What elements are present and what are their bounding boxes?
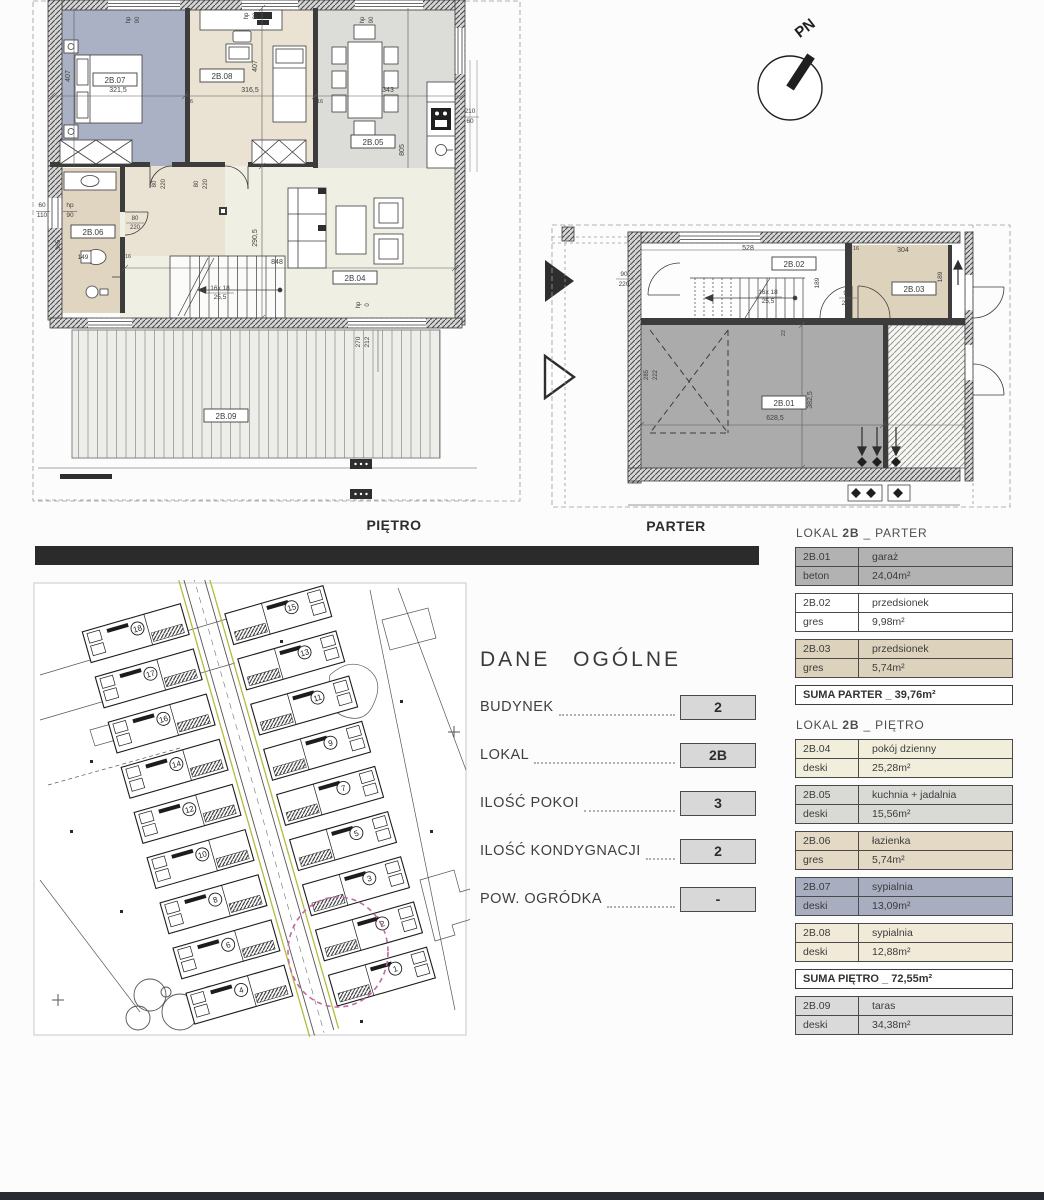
dimension-label: 90 <box>253 12 259 19</box>
dimension-label: 321,5 <box>109 87 127 94</box>
dane-value-box: 2 <box>680 695 756 720</box>
dimension-label: 80 <box>152 180 158 187</box>
sofa-icon <box>288 188 326 268</box>
dimension-label: 25,5 <box>214 294 227 301</box>
room-table: 2B.08sypialniadeski12,88m² <box>795 923 1013 962</box>
wardrobe-icon <box>252 140 306 164</box>
dimension-label: hp <box>244 12 250 19</box>
room-name-cell: taras <box>859 997 895 1015</box>
window-icon <box>108 1 423 10</box>
dimension-label: 90 <box>135 16 141 23</box>
dotted-leader <box>559 699 675 716</box>
room-id-cell: 2B.06 <box>796 832 859 850</box>
room-name-cell: przedsionek <box>859 640 929 658</box>
room-id-cell: 2B.05 <box>796 786 859 804</box>
room-label: 2B.05 <box>363 138 384 147</box>
dimension-label: 628,5 <box>766 415 784 422</box>
room-area-cell: 15,56m² <box>859 805 911 823</box>
dane-value-box: 3 <box>680 791 756 816</box>
room-name-cell: przedsionek <box>859 594 929 612</box>
dimension-label: 805 <box>399 144 406 156</box>
dimension-label: 110 <box>37 212 48 219</box>
bed-icon <box>273 46 306 122</box>
room-id-cell: 2B.03 <box>796 640 859 658</box>
legend-header-text: _ PIĘTRO <box>859 718 924 732</box>
dimension-label: 382,5 <box>807 391 814 409</box>
north-label: PN <box>792 15 819 41</box>
legend-header-text: 2B <box>842 718 859 732</box>
dimension-label: hp <box>66 202 74 209</box>
dane-value-box: 2 <box>680 839 756 864</box>
room-id-cell: 2B.01 <box>796 548 859 566</box>
dane-row: ILOŚĆ POKOI3 <box>480 790 756 816</box>
dimension-label: 16 <box>187 99 193 105</box>
dimension-label: 220 <box>130 225 141 231</box>
dimension-label: 270 <box>355 336 362 347</box>
room-area-cell: 25,28m² <box>859 759 911 777</box>
room-area-cell: 5,74m² <box>859 851 905 869</box>
dane-row: LOKAL2B <box>480 742 756 768</box>
dimension-label: 16 <box>853 246 859 252</box>
room-label: 2B.07 <box>105 76 126 85</box>
bottom-strip <box>0 1192 1044 1200</box>
room-area-cell: 12,88m² <box>859 943 911 961</box>
dimension-label: 212 <box>364 336 371 347</box>
room-id-cell: 2B.02 <box>796 594 859 612</box>
dimension-label: hp <box>360 16 366 23</box>
suma-row: SUMA PIĘTRO _ 72,55m² <box>795 969 1013 989</box>
room-table: 2B.01garażbeton24,04m² <box>795 547 1013 586</box>
room-material-cell: deski <box>796 897 859 915</box>
room-table: 2B.05kuchnia + jadalniadeski15,56m² <box>795 785 1013 824</box>
dimension-label: 220 <box>203 178 209 189</box>
dimension-label: 365 <box>55 239 62 250</box>
legend-header-text: 2B <box>842 526 859 540</box>
room-table: 2B.07sypialniadeski13,09m² <box>795 877 1013 916</box>
room-id-cell: 2B.08 <box>796 924 859 942</box>
dimension-label: 80 <box>194 180 200 187</box>
room-material-cell: gres <box>796 851 859 869</box>
dimension-label: 189 <box>937 271 944 282</box>
room-label: 2B.08 <box>212 72 233 81</box>
window-icon <box>680 233 760 243</box>
room-label: 2B.09 <box>216 412 237 421</box>
room-table: 2B.02przedsionekgres9,98m² <box>795 593 1013 632</box>
room-id-cell: 2B.04 <box>796 740 859 758</box>
room-label: 2B.06 <box>83 228 104 237</box>
dimension-label: 22 <box>781 330 787 336</box>
room-table: 2B.06łazienkagres5,74m² <box>795 831 1013 870</box>
dotted-leader <box>584 795 675 812</box>
dane-label: BUDYNEK <box>480 699 554 715</box>
dimension-label: 60 <box>38 202 46 209</box>
room-material-cell: gres <box>796 659 859 677</box>
dimension-label: 220 <box>842 300 853 307</box>
room-label: 2B.02 <box>784 260 805 269</box>
room-name-cell: sypialnia <box>859 924 913 942</box>
legend: LOKAL 2B _ PARTER2B.01garażbeton24,04m²2… <box>795 526 1013 1042</box>
dimension-label: 407 <box>65 70 72 82</box>
room-name-cell: pokój dzienny <box>859 740 936 758</box>
bed-icon <box>64 40 142 138</box>
room-material-cell: deski <box>796 759 859 777</box>
terrace-area <box>72 330 440 458</box>
dimension-label: hp <box>356 301 362 308</box>
coffee-table-icon <box>336 206 366 254</box>
dimension-label: 848 <box>271 259 283 266</box>
dane-row: ILOŚĆ KONDYGNACJI2 <box>480 838 756 864</box>
floor-plan-parter: 2B.022B.032B.01 5283041618918916x 1825,5… <box>540 215 1025 515</box>
dane-title: DANE OGÓLNE <box>480 648 756 672</box>
dane-ogolne-section: DANE OGÓLNE BUDYNEK2LOKAL2BILOŚĆ POKOI3I… <box>480 648 756 912</box>
dimension-label: 290,5 <box>252 229 259 247</box>
room-name-cell: kuchnia + jadalnia <box>859 786 956 804</box>
dimension-label: 407 <box>252 60 259 72</box>
compass: PN <box>745 10 845 125</box>
dimension-label: 16x 18 <box>758 289 778 296</box>
window-icon <box>456 28 465 74</box>
dimension-label: 25,5 <box>762 298 775 305</box>
dimension-label: 285 <box>644 369 650 380</box>
dane-label: ILOŚĆ POKOI <box>480 795 579 811</box>
room-area-cell: 34,38m² <box>859 1016 911 1034</box>
room-table: 2B.03przedsionekgres5,74m² <box>795 639 1013 678</box>
room-label: 2B.04 <box>345 274 366 283</box>
room-name-cell: łazienka <box>859 832 911 850</box>
dimension-label: 528 <box>742 245 754 252</box>
room-table: 2B.04pokój dziennydeski25,28m² <box>795 739 1013 778</box>
dimension-label: 316,5 <box>241 87 259 94</box>
room-material-cell: gres <box>796 613 859 631</box>
dimension-label: hp <box>126 16 132 23</box>
suma-row: SUMA PARTER _ 39,76m² <box>795 685 1013 705</box>
room-id-cell: 2B.09 <box>796 997 859 1015</box>
legend-header: LOKAL 2B _ PARTER <box>796 526 1013 540</box>
room-area-cell: 24,04m² <box>859 567 911 585</box>
room-name-cell: garaż <box>859 548 898 566</box>
dane-value-box: 2B <box>680 743 756 768</box>
kitchen-counter-icon <box>427 82 455 168</box>
room-material-cell: deski <box>796 805 859 823</box>
dimension-label: 189 <box>814 277 821 288</box>
dotted-leader <box>646 843 675 860</box>
dimension-label: 222 <box>653 369 659 380</box>
room-id-cell: 2B.07 <box>796 878 859 896</box>
legend-header: LOKAL 2B _ PIĘTRO <box>796 718 1013 732</box>
dimension-label: 16x 18 <box>210 285 230 292</box>
site-plan-map: 181716141210864151311975321 <box>30 580 470 1040</box>
legend-header-text: _ PARTER <box>859 526 927 540</box>
room-material-cell: deski <box>796 1016 859 1034</box>
dimension-label: 16 <box>317 99 323 105</box>
dane-label: ILOŚĆ KONDYGNACJI <box>480 843 641 859</box>
room-area-cell: 5,74m² <box>859 659 905 677</box>
dimension-label: 304 <box>897 247 909 254</box>
room-material-cell: beton <box>796 567 859 585</box>
room-area-cell: 13,09m² <box>859 897 911 915</box>
room-material-cell: deski <box>796 943 859 961</box>
dane-label: POW. OGRÓDKA <box>480 891 602 907</box>
dimension-label: 343 <box>382 87 394 94</box>
dimension-label: 90 <box>620 271 628 278</box>
dimension-label: 220 <box>161 178 167 189</box>
dimension-label: 90 <box>66 212 74 219</box>
dane-row: BUDYNEK2 <box>480 694 756 720</box>
room-label: 2B.01 <box>774 399 795 408</box>
floor-plan-pietro: 2B.072B.082B.052B.062B.042B.09 321,5316,… <box>30 0 525 510</box>
plan-caption-pietro: PIĘTRO <box>352 517 436 533</box>
dane-row: POW. OGRÓDKA- <box>480 886 756 912</box>
divider-bar <box>35 546 759 565</box>
room-area-cell: 9,98m² <box>859 613 905 631</box>
dane-label: LOKAL <box>480 747 529 763</box>
dimension-label: 90 <box>369 16 375 23</box>
dane-value-box: - <box>680 887 756 912</box>
plan-caption-parter: PARTER <box>628 518 724 534</box>
plan-sheet: 2B.072B.082B.052B.062B.042B.09 321,5316,… <box>0 0 1044 1200</box>
dimension-label: 90 <box>843 290 851 297</box>
dimension-label: 210 <box>465 108 476 115</box>
dimension-label: 16 <box>125 254 131 260</box>
dotted-leader <box>607 891 675 908</box>
dimension-label: 60 <box>466 118 474 125</box>
dimension-label: 220 <box>619 281 630 288</box>
room-name-cell: sypialnia <box>859 878 913 896</box>
dimension-label: 149 <box>78 254 89 261</box>
room-label: 2B.03 <box>904 285 925 294</box>
legend-header-text: LOKAL <box>796 526 842 540</box>
room-table: 2B.09tarasdeski34,38m² <box>795 996 1013 1035</box>
wardrobe-icon <box>60 140 132 164</box>
legend-header-text: LOKAL <box>796 718 842 732</box>
dotted-leader <box>534 747 675 764</box>
dimension-label: 80 <box>132 216 139 222</box>
window-icon <box>49 198 62 228</box>
